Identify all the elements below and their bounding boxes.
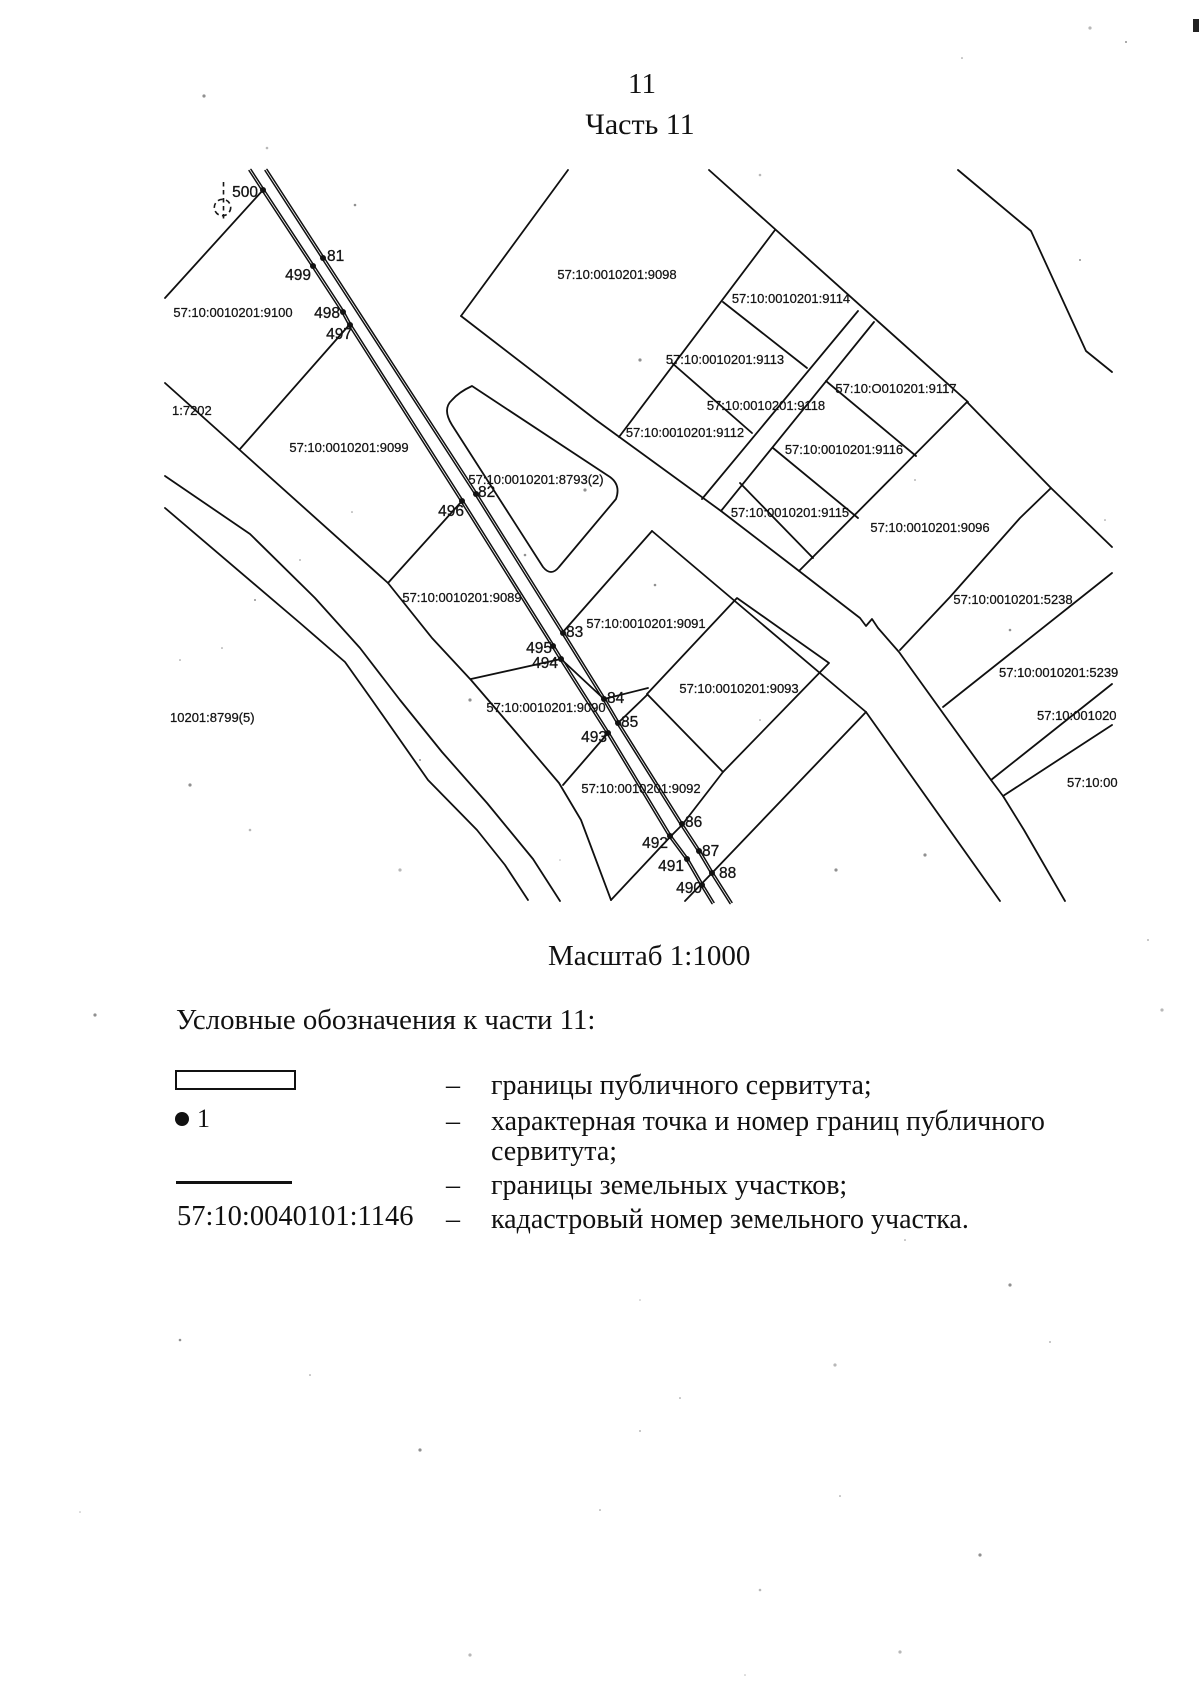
svg-text:494: 494 — [532, 655, 558, 672]
svg-text:57:10:0010201:9090: 57:10:0010201:9090 — [486, 700, 605, 715]
svg-text:57:10:O010201:9117: 57:10:O010201:9117 — [835, 381, 956, 396]
svg-text:57:10:0010201:9096: 57:10:0010201:9096 — [870, 520, 989, 535]
svg-text:57:10:0010201:9093: 57:10:0010201:9093 — [679, 681, 798, 696]
svg-text:57:10:0010201:9113: 57:10:0010201:9113 — [666, 352, 784, 367]
svg-text:497: 497 — [326, 326, 352, 343]
svg-text:88: 88 — [719, 865, 736, 882]
svg-text:493: 493 — [581, 729, 607, 746]
svg-text:87: 87 — [702, 843, 719, 860]
svg-text:57:10:0010201:9116: 57:10:0010201:9116 — [785, 442, 903, 457]
svg-text:499: 499 — [285, 267, 311, 284]
svg-text:57:10:0010201:8793(2): 57:10:0010201:8793(2) — [468, 472, 603, 487]
svg-text:81: 81 — [327, 248, 344, 265]
svg-text:84: 84 — [607, 690, 625, 707]
svg-text:490: 490 — [676, 880, 702, 897]
svg-text:10201:8799(5): 10201:8799(5) — [170, 710, 255, 725]
svg-text:57:10:0010201:5238: 57:10:0010201:5238 — [953, 592, 1072, 607]
svg-text:57:10:001020: 57:10:001020 — [1037, 708, 1117, 723]
svg-text:57:10:00: 57:10:00 — [1067, 775, 1118, 790]
svg-text:57:10:0010201:9112: 57:10:0010201:9112 — [626, 425, 744, 440]
svg-text:83: 83 — [566, 624, 583, 641]
svg-text:491: 491 — [658, 858, 684, 875]
svg-text:500: 500 — [232, 184, 258, 201]
svg-text:496: 496 — [438, 503, 464, 520]
svg-text:57:10:0010201:9098: 57:10:0010201:9098 — [557, 267, 676, 282]
svg-text:57:10:0010201:9115: 57:10:0010201:9115 — [731, 505, 849, 520]
svg-text:498: 498 — [314, 305, 340, 322]
svg-text:57:10:0010201:9100: 57:10:0010201:9100 — [173, 305, 292, 320]
svg-text:85: 85 — [621, 714, 638, 731]
svg-text:1:7202: 1:7202 — [172, 403, 212, 418]
svg-text:57:10:0010201:9091: 57:10:0010201:9091 — [586, 616, 705, 631]
svg-text:57:10:0010201:9089: 57:10:0010201:9089 — [402, 590, 521, 605]
svg-text:492: 492 — [642, 835, 668, 852]
svg-text:57:10:0010201:9118: 57:10:0010201:9118 — [707, 398, 825, 413]
svg-text:57:10:0010201:9114: 57:10:0010201:9114 — [732, 291, 850, 306]
svg-text:86: 86 — [685, 814, 702, 831]
svg-text:57:10:0010201:5239: 57:10:0010201:5239 — [999, 665, 1118, 680]
svg-text:57:10:0010201:9092: 57:10:0010201:9092 — [581, 781, 700, 796]
svg-text:57:10:0010201:9099: 57:10:0010201:9099 — [289, 440, 408, 455]
